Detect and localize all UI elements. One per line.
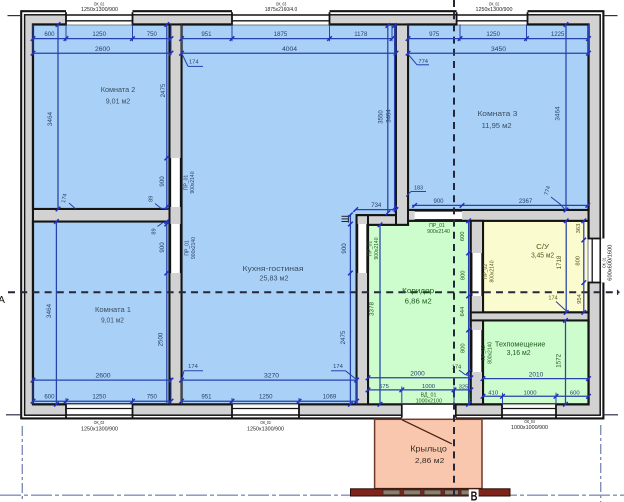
svg-text:900х2140: 900х2140 [191,237,197,259]
svg-text:ОК_02: ОК_02 [260,420,271,426]
svg-text:9,01 м2: 9,01 м2 [101,318,124,325]
svg-text:951: 951 [201,31,212,38]
svg-text:410: 410 [488,390,499,396]
svg-text:1250х1300/900: 1250х1300/900 [476,7,513,13]
svg-text:900х2140: 900х2140 [427,229,450,235]
svg-text:2367: 2367 [519,199,533,205]
svg-text:А: А [0,295,5,306]
svg-text:900х2140: 900х2140 [190,171,196,193]
svg-text:1572: 1572 [556,353,563,367]
svg-text:174: 174 [452,364,461,370]
svg-text:800: 800 [460,270,466,280]
svg-text:600: 600 [44,394,55,401]
svg-text:3550: 3550 [379,110,385,124]
svg-text:600: 600 [44,31,55,38]
svg-text:800х2140: 800х2140 [489,260,495,282]
svg-text:2600: 2600 [95,46,110,53]
svg-text:2475: 2475 [160,83,167,97]
svg-text:363: 363 [576,224,582,234]
svg-text:3378: 3378 [368,302,375,316]
svg-text:89: 89 [149,196,155,202]
svg-text:1875х2160/4.0: 1875х2160/4.0 [265,7,298,13]
svg-text:6,86 м2: 6,86 м2 [405,298,432,305]
svg-text:174: 174 [333,364,343,370]
svg-text:ПР_01: ПР_01 [368,241,374,256]
svg-text:Крыльцо: Крыльцо [410,445,447,454]
svg-text:ПР_02: ПР_02 [483,264,489,279]
svg-text:3464: 3464 [554,106,561,121]
svg-text:Комната 3: Комната 3 [477,109,517,118]
svg-text:3270: 3270 [264,372,279,379]
svg-text:174: 174 [188,364,198,370]
svg-text:900: 900 [341,243,348,254]
svg-text:800х2140: 800х2140 [487,342,493,364]
svg-text:1875: 1875 [274,31,288,38]
svg-text:2600: 2600 [95,372,110,379]
svg-text:ПР_01: ПР_01 [184,175,190,190]
svg-text:89: 89 [151,228,157,234]
svg-text:1250х1300/900: 1250х1300/900 [81,426,118,432]
svg-text:3,45 м2: 3,45 м2 [531,253,554,260]
svg-text:975: 975 [429,31,440,38]
svg-text:ПР_02: ПР_02 [481,345,487,360]
svg-text:900х2140: 900х2140 [374,237,380,259]
svg-text:2,86 м2: 2,86 м2 [415,456,445,465]
svg-text:774: 774 [418,59,428,65]
svg-text:3464: 3464 [47,111,54,126]
svg-text:734: 734 [371,203,382,209]
svg-text:183: 183 [414,186,423,192]
svg-text:1250х1300/900: 1250х1300/900 [247,426,284,432]
svg-text:ОК_02: ОК_02 [94,420,105,426]
svg-text:954: 954 [577,293,583,303]
svg-text:750: 750 [147,31,158,38]
svg-text:1250: 1250 [92,31,106,38]
svg-text:800: 800 [461,343,467,353]
svg-text:600: 600 [460,231,466,241]
svg-text:4004: 4004 [282,46,297,53]
svg-text:1250х1300/900: 1250х1300/900 [81,7,118,13]
svg-text:Кухня-гостиная: Кухня-гостиная [243,264,304,273]
svg-text:600х600/1600: 600х600/1600 [608,245,614,281]
svg-text:ОК_04: ОК_04 [524,419,535,425]
svg-text:1000: 1000 [523,390,537,396]
svg-text:1178: 1178 [354,31,368,38]
svg-text:1000: 1000 [422,384,436,390]
svg-text:644: 644 [460,306,466,316]
svg-text:900: 900 [433,199,444,205]
svg-text:Комната 2: Комната 2 [101,87,136,94]
svg-text:900: 900 [159,176,166,187]
svg-text:750: 750 [147,394,158,401]
svg-text:2010: 2010 [529,371,544,378]
svg-text:ВД_01: ВД_01 [421,392,437,398]
svg-text:2000: 2000 [410,371,425,378]
svg-text:1718: 1718 [556,255,563,269]
svg-text:Техпомещение: Техпомещение [495,342,546,349]
svg-text:1225: 1225 [551,31,565,38]
svg-text:В: В [471,489,478,502]
svg-text:325: 325 [459,384,470,390]
svg-text:25,83 м2: 25,83 м2 [260,275,289,282]
svg-text:2475: 2475 [340,330,347,344]
svg-text:3464: 3464 [387,109,393,123]
svg-text:1000х1000/900: 1000х1000/900 [511,425,548,431]
svg-text:1069: 1069 [323,394,337,401]
svg-text:Коридор: Коридор [402,288,434,295]
svg-text:600: 600 [468,392,474,402]
svg-text:174: 174 [548,296,557,302]
svg-text:3450: 3450 [491,46,506,53]
svg-text:ПР_01: ПР_01 [185,240,191,255]
svg-text:1250: 1250 [92,394,106,401]
svg-text:С/У: С/У [536,244,550,251]
svg-text:1250: 1250 [486,31,500,38]
svg-text:951: 951 [201,394,212,401]
svg-text:Комната 1: Комната 1 [95,307,131,314]
svg-text:1250: 1250 [259,394,273,401]
svg-text:3464: 3464 [46,303,53,318]
svg-text:174: 174 [189,60,199,66]
svg-text:900: 900 [159,242,166,253]
svg-text:1000х2100: 1000х2100 [416,398,442,404]
svg-text:800: 800 [576,256,582,266]
svg-text:675: 675 [379,384,390,390]
svg-text:11,95 м2: 11,95 м2 [482,123,512,130]
svg-text:600: 600 [570,390,581,396]
svg-text:9,01 м2: 9,01 м2 [106,99,131,106]
svg-text:3,16 м2: 3,16 м2 [507,350,531,357]
svg-text:2500: 2500 [158,332,165,346]
